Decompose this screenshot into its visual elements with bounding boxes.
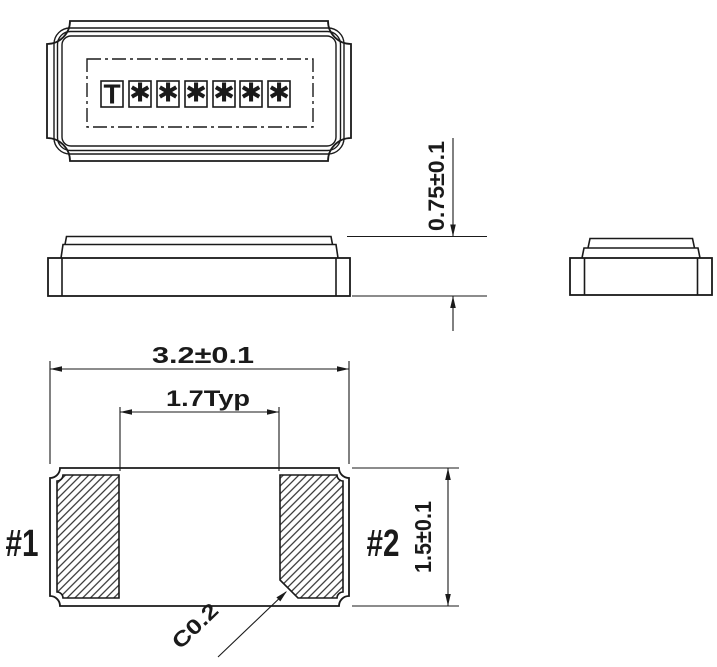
dimension-height-text: 0.75±0.1 bbox=[424, 141, 449, 231]
pad1-label: #1 bbox=[6, 523, 39, 565]
package-outline-drawing: T ✱ ✱ ✱ ✱ ✱ ✱ bbox=[0, 0, 717, 667]
side-lid-step-flange bbox=[61, 245, 338, 259]
marking-cell-5: ✱ bbox=[213, 79, 235, 109]
dimension-height: 0.75±0.1 bbox=[347, 138, 487, 331]
end-view bbox=[570, 239, 712, 296]
marking-cell-3: ✱ bbox=[157, 79, 179, 109]
dimension-length-text: 3.2±0.1 bbox=[152, 342, 254, 368]
end-lid-step-flange bbox=[582, 248, 700, 258]
arrowhead bbox=[445, 468, 451, 480]
bottom-view bbox=[50, 468, 349, 606]
top-view: T ✱ ✱ ✱ ✱ ✱ ✱ bbox=[47, 21, 351, 161]
arrowhead bbox=[267, 409, 279, 415]
marking-cell-6: ✱ bbox=[240, 79, 262, 109]
marking-cell-7: ✱ bbox=[268, 79, 290, 109]
end-body-outline bbox=[570, 258, 712, 295]
technical-drawing-canvas: T ✱ ✱ ✱ ✱ ✱ ✱ bbox=[0, 0, 717, 667]
dimension-pad-pitch-text: 1.7Typ bbox=[166, 386, 250, 411]
chamfer-text: C0.2 bbox=[168, 599, 224, 654]
marking-cell-2: ✱ bbox=[129, 79, 151, 109]
marking-row: T ✱ ✱ ✱ ✱ ✱ ✱ bbox=[101, 79, 290, 110]
end-lid-step-top bbox=[588, 239, 695, 249]
arrowhead bbox=[445, 594, 451, 606]
arrowhead bbox=[450, 225, 456, 237]
arrowhead bbox=[50, 366, 62, 372]
side-lid-step-top bbox=[65, 237, 333, 245]
pad2-label: #2 bbox=[367, 523, 400, 565]
arrowhead bbox=[337, 366, 349, 372]
dimension-width-text: 1.5±0.1 bbox=[410, 501, 436, 573]
marking-cell-4: ✱ bbox=[185, 79, 207, 109]
marking-char: ✱ bbox=[268, 79, 290, 109]
pad1-electrode bbox=[57, 475, 119, 598]
marking-char: ✱ bbox=[129, 79, 151, 109]
arrowhead bbox=[450, 296, 456, 308]
dimension-pad-pitch: 1.7Typ bbox=[120, 386, 279, 471]
marking-char: T bbox=[103, 79, 120, 110]
arrowhead bbox=[120, 409, 132, 415]
side-view bbox=[48, 237, 350, 297]
marking-cell-1: T bbox=[101, 79, 123, 110]
marking-char: ✱ bbox=[157, 79, 179, 109]
marking-char: ✱ bbox=[185, 79, 207, 109]
marking-char: ✱ bbox=[240, 79, 262, 109]
marking-char: ✱ bbox=[213, 79, 235, 109]
pad2-electrode bbox=[280, 475, 343, 598]
side-body-outline bbox=[48, 258, 350, 296]
